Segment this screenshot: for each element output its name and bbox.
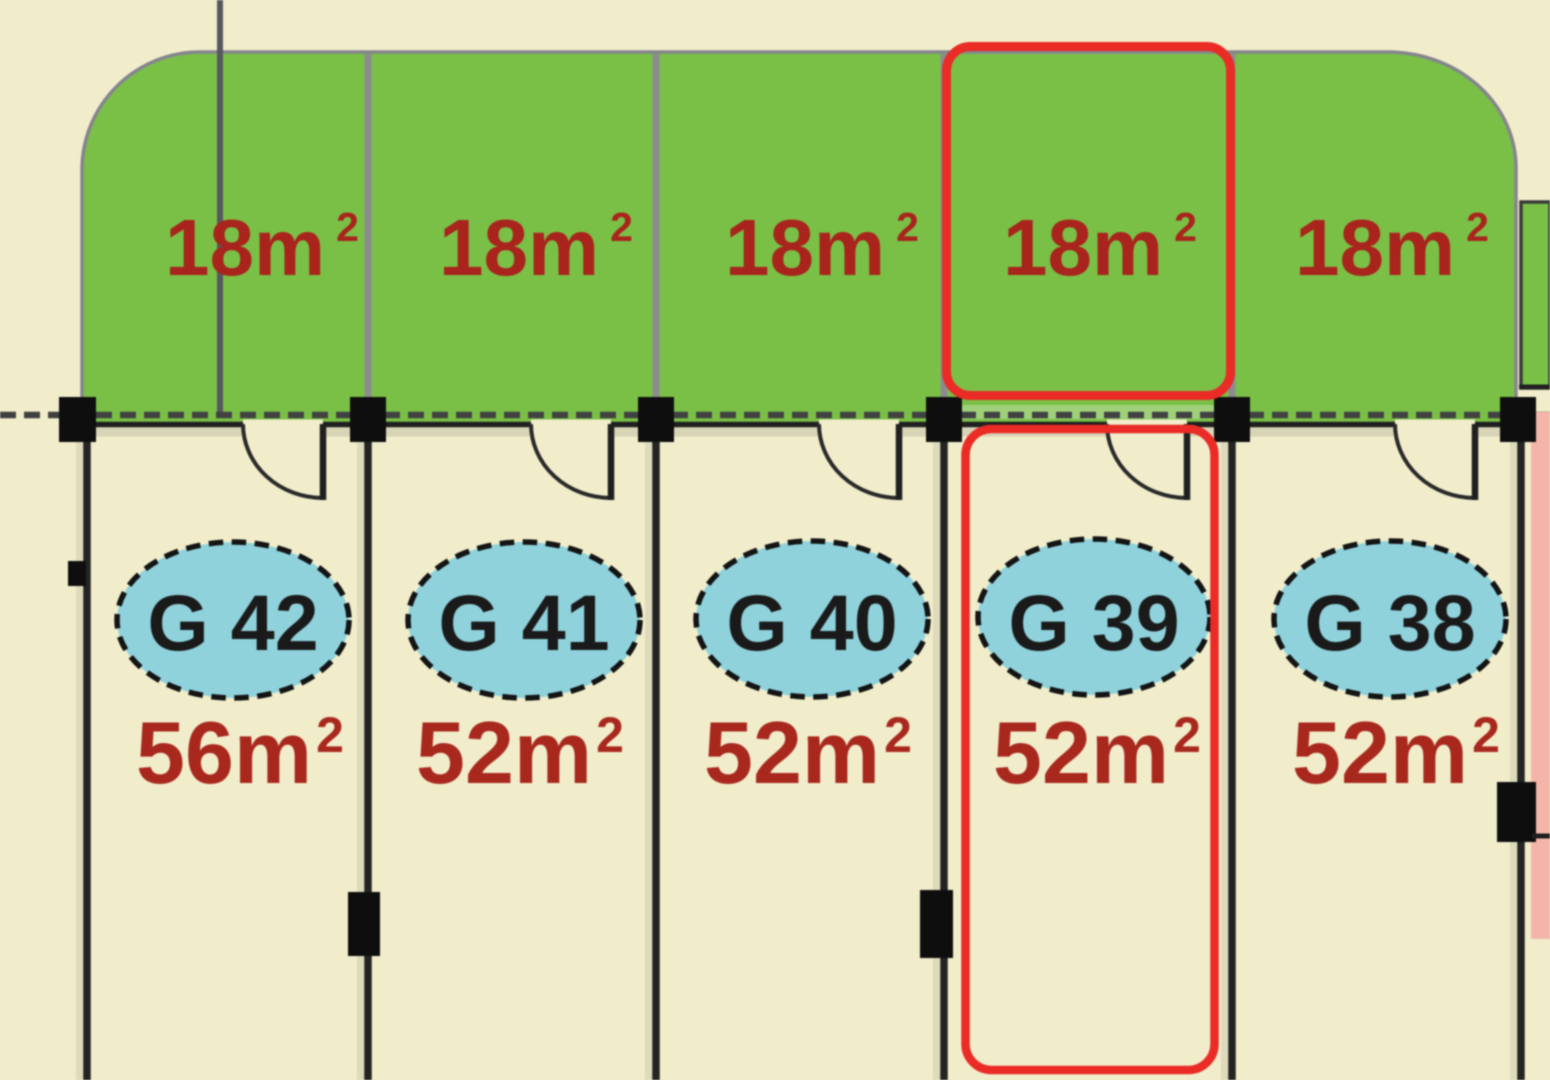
svg-text:G 40: G 40 [726, 578, 897, 667]
svg-text:G 41: G 41 [438, 578, 609, 667]
svg-text:G 38: G 38 [1304, 578, 1475, 667]
svg-text:G 42: G 42 [147, 578, 318, 667]
svg-text:G 39: G 39 [1008, 578, 1179, 667]
